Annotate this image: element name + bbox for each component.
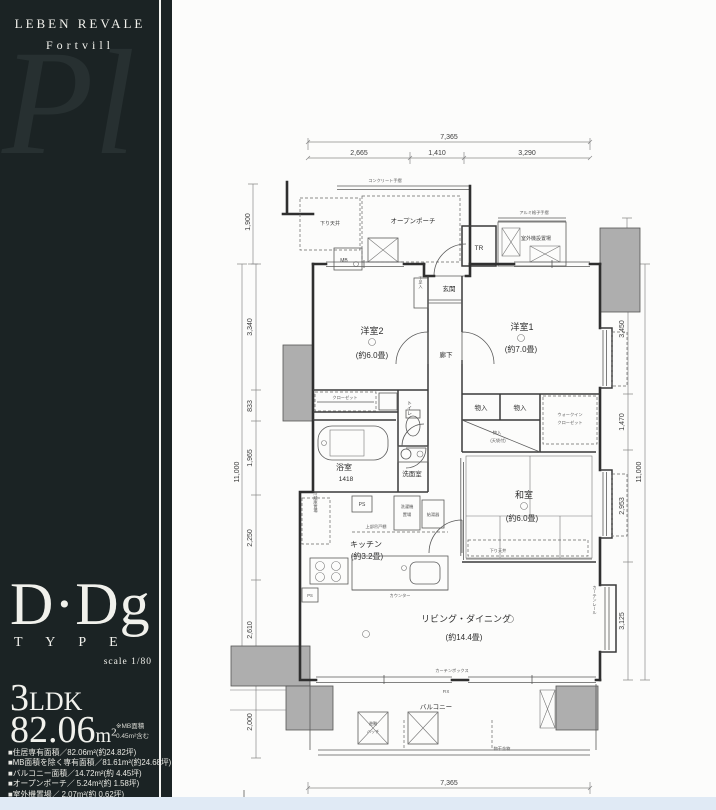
dim-r1: 3,450 xyxy=(619,320,626,338)
concrete-rail-label: コンクリート手摺 xyxy=(368,177,402,184)
ps-label: PS xyxy=(359,502,366,508)
living-label: リビング・ダイニング xyxy=(421,613,511,624)
bathtub-icon xyxy=(318,426,388,460)
kyutoki-label: 給湯器 xyxy=(427,511,440,518)
sanitary-area: トイレ 浴室 1418 洗面室 xyxy=(318,401,428,484)
monoire-ten-1: 物入 xyxy=(493,429,502,436)
brand-subname: Fortvill xyxy=(0,38,160,53)
porch-hatch-icon xyxy=(368,238,398,262)
sagari-tenjo2-label: 下り天井 xyxy=(490,547,507,554)
monoire-ten-2: (天袋付) xyxy=(490,437,506,444)
scan-edge-strip xyxy=(0,797,716,810)
alumi-rail-label: アルミ格子手摺 xyxy=(519,209,548,216)
area-note: ※MB面積 0.45m²含む xyxy=(116,722,149,742)
balcony-area: FIX バルコニー 避難 ハッチ 物干金物 xyxy=(230,684,596,755)
spec-item: ■住居専有面積／82.06m²(約24.82坪) xyxy=(8,748,158,758)
entrance-door-arc xyxy=(434,244,466,276)
escape-hatch-icon-2 xyxy=(408,712,438,744)
door-arcs xyxy=(396,332,494,553)
hatch-label-2: ハッチ xyxy=(367,729,380,734)
sink-counter xyxy=(352,556,448,590)
closet-label: クローゼット xyxy=(332,394,357,401)
mb-label: MB xyxy=(340,258,348,264)
yoshitsu1-size: (約7.0畳) xyxy=(505,344,538,354)
area-value: 82.06 xyxy=(10,709,96,751)
kitchen-area: PS 洗濯機 置場 給湯器 上部吊戸棚 冷蔵庫置場 キッチン (約3.2畳) P… xyxy=(302,490,448,602)
dim-r4: 3,125 xyxy=(619,612,626,630)
sidebar: Pl LEBEN REVALE Fortvill D·Dg T Y P E sc… xyxy=(0,0,172,810)
rouka-label: 廊下 xyxy=(440,350,454,359)
type-name: D·Dg xyxy=(10,576,152,633)
fix-label: FIX xyxy=(443,689,450,694)
type-word: T Y P E xyxy=(14,635,152,651)
partition-hatch-icon xyxy=(540,690,555,728)
living-size: (約14.4畳) xyxy=(446,632,483,642)
dim-bottom-total: 7,365 xyxy=(440,780,458,787)
spec-item: ■オープンポーチ／ 5.24m²(約 1.58坪) xyxy=(8,779,158,789)
brochure-page: 7,365 2,665 1,410 3,290 1,900 3,340 833 … xyxy=(0,0,716,810)
dim-l1: 3,340 xyxy=(247,318,254,336)
dim-left-total: 11,000 xyxy=(234,461,241,482)
monohoshi-label: 物干金物 xyxy=(494,745,511,752)
curtain-rail-label: カーテンレール xyxy=(593,585,598,615)
outdoor-unit-label: 室外機設置場 xyxy=(521,235,551,242)
washitsu-room: 和室 (約6.0畳) 下り天井 xyxy=(466,456,592,558)
yoshitsu2-size: (約6.0畳) xyxy=(356,350,389,360)
bath-size: 1418 xyxy=(339,476,354,483)
dim-left-upper: 1,900 xyxy=(245,213,252,231)
dim-top-total: 7,365 xyxy=(440,134,458,141)
spec-item: ■MB面積を除く専有面積／81.61m²(約24.68坪) xyxy=(8,758,158,768)
curtain-box-label: カーテンボックス xyxy=(435,667,468,674)
dim-right-total: 11,000 xyxy=(636,461,643,482)
dim-top-seg3: 3,290 xyxy=(518,150,536,157)
type-block: D·Dg T Y P E scale 1/80 xyxy=(10,576,152,667)
reizoko-label: 冷蔵庫置場 xyxy=(313,490,319,514)
brand-name: LEBEN REVALE xyxy=(0,16,160,32)
trunk-room: TR xyxy=(462,226,496,266)
washitsu-label: 和室 xyxy=(515,489,533,500)
bedroom1: 洋室1 (約7.0畳) 物入 物入 ウォークイン クローゼット 物入 (天袋付) xyxy=(475,321,598,444)
dim-r3: 2,953 xyxy=(619,497,626,515)
dim-l2: 833 xyxy=(247,400,254,412)
geta-label: 下足入 xyxy=(418,275,424,288)
interior-walls xyxy=(313,276,600,562)
kitchen-label: キッチン xyxy=(350,540,382,549)
sagari-tenjo-label: 下り天井 xyxy=(320,220,340,227)
entrance-area: 玄関 下足入 廊下 xyxy=(414,275,456,359)
yoshitsu2-label: 洋室2 xyxy=(360,325,383,336)
sentakuki-label-2: 置場 xyxy=(403,511,412,518)
dim-left-lower: 2,000 xyxy=(247,713,254,731)
senmen-label: 洗面室 xyxy=(402,469,422,478)
sidebar-divider xyxy=(159,0,161,810)
porch-area: コンクリート手摺 下り天井 オープンポーチ MB TR xyxy=(300,177,566,276)
escape-hatch-icon: 避難 ハッチ xyxy=(358,712,388,744)
yoshitsu1-label: 洋室1 xyxy=(510,321,533,332)
brand-block: LEBEN REVALE Fortvill xyxy=(0,16,160,53)
balcony-label: バルコニー xyxy=(420,703,452,711)
monoire-b-label: 物入 xyxy=(514,403,528,412)
stove-icon xyxy=(310,558,348,584)
scale-note: scale 1/80 xyxy=(10,657,152,667)
dim-l4: 2,250 xyxy=(247,529,254,547)
area-note-line2: 0.45m²含む xyxy=(116,732,149,742)
counter-label: カウンター xyxy=(390,592,411,599)
bedroom2: 洋室2 (約6.0畳) クローゼット xyxy=(315,325,397,411)
wic-label-2: クローゼット xyxy=(557,419,582,426)
open-porch-label: オープンポーチ xyxy=(390,217,435,225)
spec-item: ■バルコニー面積／14.72m²(約 4.45坪) xyxy=(8,769,158,779)
sentakuki-label-1: 洗濯機 xyxy=(401,503,414,510)
dim-l5: 2,610 xyxy=(247,621,254,639)
dim-r2: 1,470 xyxy=(619,413,626,431)
area-unit: m xyxy=(96,725,112,747)
toilet-label: トイレ xyxy=(406,401,412,416)
hatch-label-1: 避難 xyxy=(369,720,377,727)
washitsu-size: (約6.0畳) xyxy=(506,513,539,523)
genkan-label: 玄関 xyxy=(443,284,456,293)
tsuridana-label: 上部吊戸棚 xyxy=(366,523,387,530)
outdoor-unit-space: アルミ格子手摺 室外機設置場 xyxy=(498,209,566,266)
wic-label-1: ウォークイン xyxy=(557,411,582,418)
area-figure: 82.06m2 xyxy=(10,708,117,752)
living-dining: リビング・ダイニング (約14.4畳) xyxy=(363,613,514,642)
bath-label: 浴室 xyxy=(336,462,352,472)
tr-label: TR xyxy=(475,245,484,252)
area-note-line1: ※MB面積 xyxy=(116,722,149,732)
monoire-a-label: 物入 xyxy=(475,403,489,412)
ps2-label: PS xyxy=(307,593,313,598)
dim-top-seg1: 2,665 xyxy=(350,150,368,157)
dim-top-seg2: 1,410 xyxy=(428,150,446,157)
dim-l3: 1,965 xyxy=(247,449,254,467)
